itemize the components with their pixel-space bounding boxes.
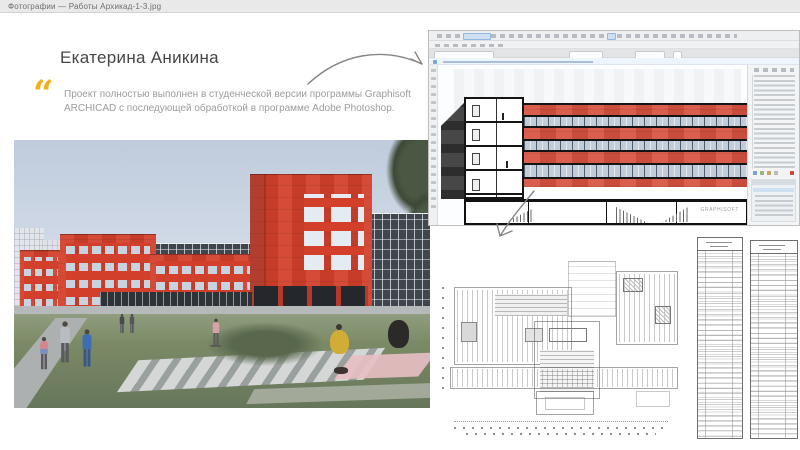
person-figure	[129, 314, 135, 334]
lawn-mound	[206, 322, 324, 366]
dimension-ticks	[466, 433, 656, 435]
navigator-tree	[754, 75, 795, 169]
tree-indent-guide	[752, 75, 753, 169]
person-figure	[59, 321, 72, 364]
arrow-right-icon	[300, 38, 435, 93]
dimension-ticks	[454, 427, 668, 429]
room-schedule-table-1	[697, 237, 743, 439]
stair-run	[616, 207, 648, 223]
window-title: Фотографии — Работы Архикад-1-3.jpg	[8, 2, 161, 11]
arrow-down-icon	[488, 186, 548, 246]
section-left-building	[464, 97, 524, 199]
photo-viewer-window: Фотографии — Работы Архикад-1-3.jpg Екат…	[0, 0, 800, 450]
active-tool-highlight	[463, 33, 491, 40]
stair-run	[662, 207, 688, 222]
window-strip	[524, 163, 747, 179]
figure-mark	[506, 161, 508, 168]
person-figure	[39, 337, 49, 371]
plan-courtyard	[568, 261, 616, 317]
auditorium-stage	[549, 328, 587, 342]
table-header	[751, 241, 797, 254]
dimension-line	[454, 421, 668, 422]
plan-lower-wing	[450, 367, 678, 389]
education-version-bar	[429, 58, 799, 65]
door	[472, 153, 480, 165]
person-figure	[119, 314, 125, 334]
person-figure	[81, 329, 93, 368]
mini-icon	[753, 171, 757, 175]
tool-strip	[429, 65, 438, 225]
mini-icon	[760, 171, 764, 175]
table-rows	[698, 251, 742, 438]
subpanel-header	[752, 180, 795, 185]
subpanel-rows	[755, 195, 793, 218]
window-strip	[524, 115, 747, 128]
navigator-subpanel	[751, 179, 796, 222]
door	[472, 105, 480, 117]
plan-rooms	[452, 369, 676, 387]
sidewalk	[14, 306, 430, 314]
mini-icon	[774, 171, 778, 175]
window-titlebar[interactable]: Фотографии — Работы Архикад-1-3.jpg	[0, 0, 800, 13]
person-sitting	[330, 330, 349, 354]
grid-axis-column	[442, 287, 444, 391]
archicad-screenshot: GRAPHISOFT	[428, 30, 800, 226]
window-grid	[304, 194, 364, 270]
selected-row	[753, 188, 794, 192]
graphisoft-watermark: GRAPHISOFT	[700, 207, 739, 213]
section-dark-wing	[441, 103, 464, 199]
person-head	[336, 324, 342, 330]
author-name: Екатерина Аникина	[60, 48, 219, 68]
archicad-toolbar	[429, 31, 799, 41]
plan-stair-core	[655, 306, 671, 324]
archicad-tab-bar	[429, 49, 799, 58]
person-on-scooter	[212, 319, 221, 348]
archicad-toolbar-row2	[429, 41, 799, 49]
close-icon	[790, 171, 794, 175]
plan-room	[545, 397, 585, 410]
table-rows	[751, 254, 797, 438]
bag	[334, 367, 348, 374]
floor-plan-drawing	[440, 243, 690, 440]
plan-annex-right	[636, 391, 670, 407]
info-icon	[433, 60, 437, 64]
quote-icon: “	[33, 76, 54, 112]
navigator-toolbar	[753, 171, 795, 176]
building-rendering	[14, 140, 430, 408]
plan-right-wing	[616, 271, 678, 345]
mini-icon	[767, 171, 771, 175]
room-schedule-table-2	[750, 240, 798, 439]
section-red-facade	[524, 103, 747, 187]
watermark-text-line	[443, 61, 593, 63]
navigator-icons	[752, 67, 796, 73]
plan-corridor	[495, 294, 567, 316]
window-grid	[24, 257, 58, 306]
plan-stair-core	[623, 278, 643, 292]
active-tool-highlight	[607, 33, 616, 40]
red-building-block	[20, 250, 62, 312]
plan-core	[461, 322, 477, 342]
navigator-panel	[747, 65, 799, 225]
window-strip	[524, 139, 747, 152]
drawing-canvas: GRAPHISOFT	[438, 65, 747, 225]
table-header	[698, 238, 742, 251]
door	[472, 179, 480, 191]
figure-mark	[502, 113, 504, 120]
plan-annex	[536, 391, 594, 415]
door	[472, 129, 480, 141]
glass-facade	[366, 214, 430, 310]
person-sitting	[388, 320, 409, 348]
